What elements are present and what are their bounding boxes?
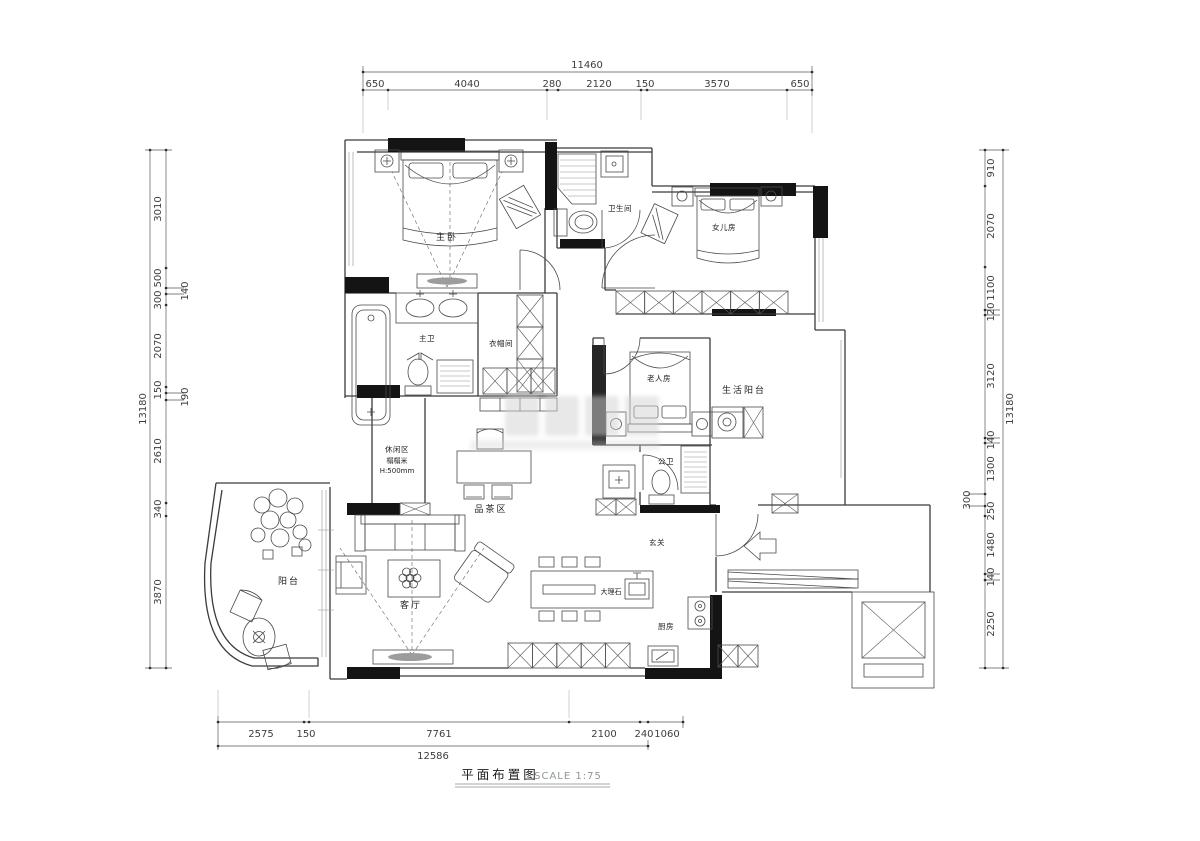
heater-closet	[772, 494, 798, 513]
dim-right-4: 3120	[986, 363, 997, 388]
dim-top-4: 150	[635, 79, 654, 90]
dim-bottom-total: 12586	[417, 751, 449, 762]
public-toilet	[649, 470, 674, 504]
dim-left-3: 300	[153, 290, 164, 309]
doors	[520, 210, 758, 556]
stairs	[728, 570, 858, 588]
dim-right-2: 1100	[986, 275, 997, 300]
stove	[688, 597, 712, 629]
watermark	[505, 396, 659, 436]
dim-top-2: 280	[542, 79, 561, 90]
dim-left-total: 13180	[138, 393, 149, 425]
wall-block	[560, 239, 605, 248]
dim-top-0: 650	[365, 79, 384, 90]
wall-block	[813, 186, 828, 238]
dim-right-10: 140	[986, 567, 997, 586]
wall-block	[347, 667, 400, 679]
kitchen-cabinet-row	[508, 643, 630, 668]
wall-block	[545, 142, 557, 210]
public-shower	[681, 446, 710, 493]
dim-bottom-1: 150	[296, 729, 315, 740]
dim-top-total: 11460	[571, 60, 603, 71]
floor-plan-page: 11460 650 4040 280 2120 150 3570 650 131…	[0, 0, 1200, 841]
daughter-chair	[641, 204, 678, 244]
wall-block	[357, 385, 400, 398]
dim-top-1: 4040	[454, 79, 479, 90]
wall-block	[710, 183, 796, 196]
dimension-chain-right: 13180 910 2070 1100 120 3120 140 1300 30…	[962, 150, 1016, 668]
dim-left-1: 500	[153, 268, 164, 287]
dim-right-3: 120	[986, 302, 997, 321]
hall-cabinet	[596, 499, 636, 515]
dim-top-6: 650	[790, 79, 809, 90]
label-entrance: 玄关	[649, 537, 665, 547]
entry-arrow	[744, 532, 776, 560]
dim-bottom-4: 240	[634, 729, 653, 740]
fridge	[648, 646, 678, 666]
bathroom-door	[602, 210, 640, 248]
shower	[558, 154, 596, 204]
kitchen-island	[531, 557, 653, 621]
balcony-plants	[251, 489, 311, 559]
bathtub	[352, 305, 390, 425]
vanity-double-sink	[396, 290, 478, 323]
dim-bottom-2: 7761	[426, 729, 451, 740]
dim-left-9: 3870	[153, 579, 164, 604]
dim-right-9: 1480	[986, 532, 997, 557]
wall-block	[345, 277, 389, 293]
label-public-bath: 公卫	[658, 457, 674, 466]
label-service-balcony: 生活阳台	[722, 384, 766, 396]
elder-room-door	[604, 338, 640, 374]
label-bathroom: 卫生间	[608, 203, 632, 213]
label-tea-area: 品茶区	[474, 503, 507, 515]
label-elder-room: 老人房	[647, 373, 671, 383]
master-nightstand-left	[375, 150, 399, 172]
wall-block	[712, 309, 776, 316]
sofa	[355, 515, 465, 551]
dim-right-5: 140	[986, 430, 997, 449]
dim-left-5: 150	[153, 380, 164, 399]
dim-left-6: 190	[180, 387, 191, 406]
label-master-bath: 主卫	[419, 333, 435, 343]
dim-left-4: 2070	[153, 333, 164, 358]
closet-cabinet	[517, 359, 543, 392]
dim-right-0: 910	[986, 158, 997, 177]
master-dresser-tv	[417, 274, 477, 288]
dimension-chain-left: 13180 3010 500 140 300 2070 150 190 2610…	[138, 150, 191, 668]
washing-machine	[712, 407, 743, 438]
coffee-table	[388, 560, 440, 597]
service-balcony-cabinet	[744, 407, 763, 438]
label-leisure-height: H:500mm	[380, 467, 415, 475]
dim-right-7: 300	[962, 490, 973, 509]
master-toilet	[405, 359, 431, 395]
bathroom-sink	[601, 151, 628, 177]
label-island-material: 大理石	[601, 587, 622, 596]
label-closet: 衣帽间	[489, 338, 513, 348]
master-chair	[499, 185, 540, 228]
label-living-room: 客厅	[400, 599, 422, 611]
dim-right-1: 2070	[986, 213, 997, 238]
daughter-nightstand-left	[672, 187, 693, 206]
dim-right-11: 2250	[986, 611, 997, 636]
armchair-left	[336, 556, 366, 594]
closet-cabinet-row	[483, 368, 555, 394]
label-balcony: 阳台	[278, 575, 300, 587]
dim-bottom-3: 2100	[591, 729, 616, 740]
daughter-room-door	[602, 235, 655, 288]
drawing-title: 平面布置图	[461, 767, 539, 782]
entry-door	[716, 514, 758, 556]
label-leisure-area: 休闲区	[385, 444, 409, 454]
armchair-right	[453, 541, 515, 604]
dim-left-7: 2610	[153, 438, 164, 463]
label-leisure-type: 榻榻米	[387, 456, 408, 465]
tv-cabinet	[373, 650, 453, 664]
master-bedroom-door	[520, 250, 560, 290]
dimension-chain-bottom: 2575 150 7761 2100 240 1060 12586	[218, 690, 683, 762]
dim-top-3: 2120	[586, 79, 611, 90]
label-daughter-room: 女儿房	[712, 222, 736, 232]
watermark-sub	[470, 440, 660, 450]
dim-right-6: 1300	[986, 456, 997, 481]
public-bath-sink	[603, 465, 635, 498]
wall-block	[388, 138, 465, 152]
drawing-scale: SCALE 1:75	[534, 771, 602, 782]
living-top-cabinet	[400, 503, 430, 515]
wall-block	[640, 505, 720, 513]
dim-bottom-5: 1060	[654, 729, 679, 740]
dim-left-2: 140	[180, 281, 191, 300]
dim-right-8: 250	[986, 501, 997, 520]
dimension-chain-top: 11460 650 4040 280 2120 150 3570 650	[363, 60, 812, 133]
elevator	[852, 592, 934, 688]
closet-cabinet	[517, 295, 543, 327]
hall-cabinet-right	[718, 645, 758, 667]
elder-nightstand-right	[692, 412, 712, 436]
closet-cabinet	[517, 327, 543, 359]
label-master-bedroom: 主卧	[436, 231, 458, 243]
title-block: 平面布置图 SCALE 1:75	[455, 767, 610, 787]
dim-left-8: 340	[153, 499, 164, 518]
bathroom-toilet	[554, 209, 597, 236]
sightline-master	[392, 162, 502, 287]
dim-right-total: 13180	[1005, 393, 1016, 425]
master-nightstand-right	[499, 150, 523, 172]
dim-bottom-0: 2575	[248, 729, 273, 740]
wall-block	[645, 668, 722, 679]
dim-top-5: 3570	[704, 79, 729, 90]
label-kitchen: 厨房	[658, 621, 674, 631]
wall-block	[347, 503, 400, 515]
dim-left-0: 3010	[153, 196, 164, 221]
